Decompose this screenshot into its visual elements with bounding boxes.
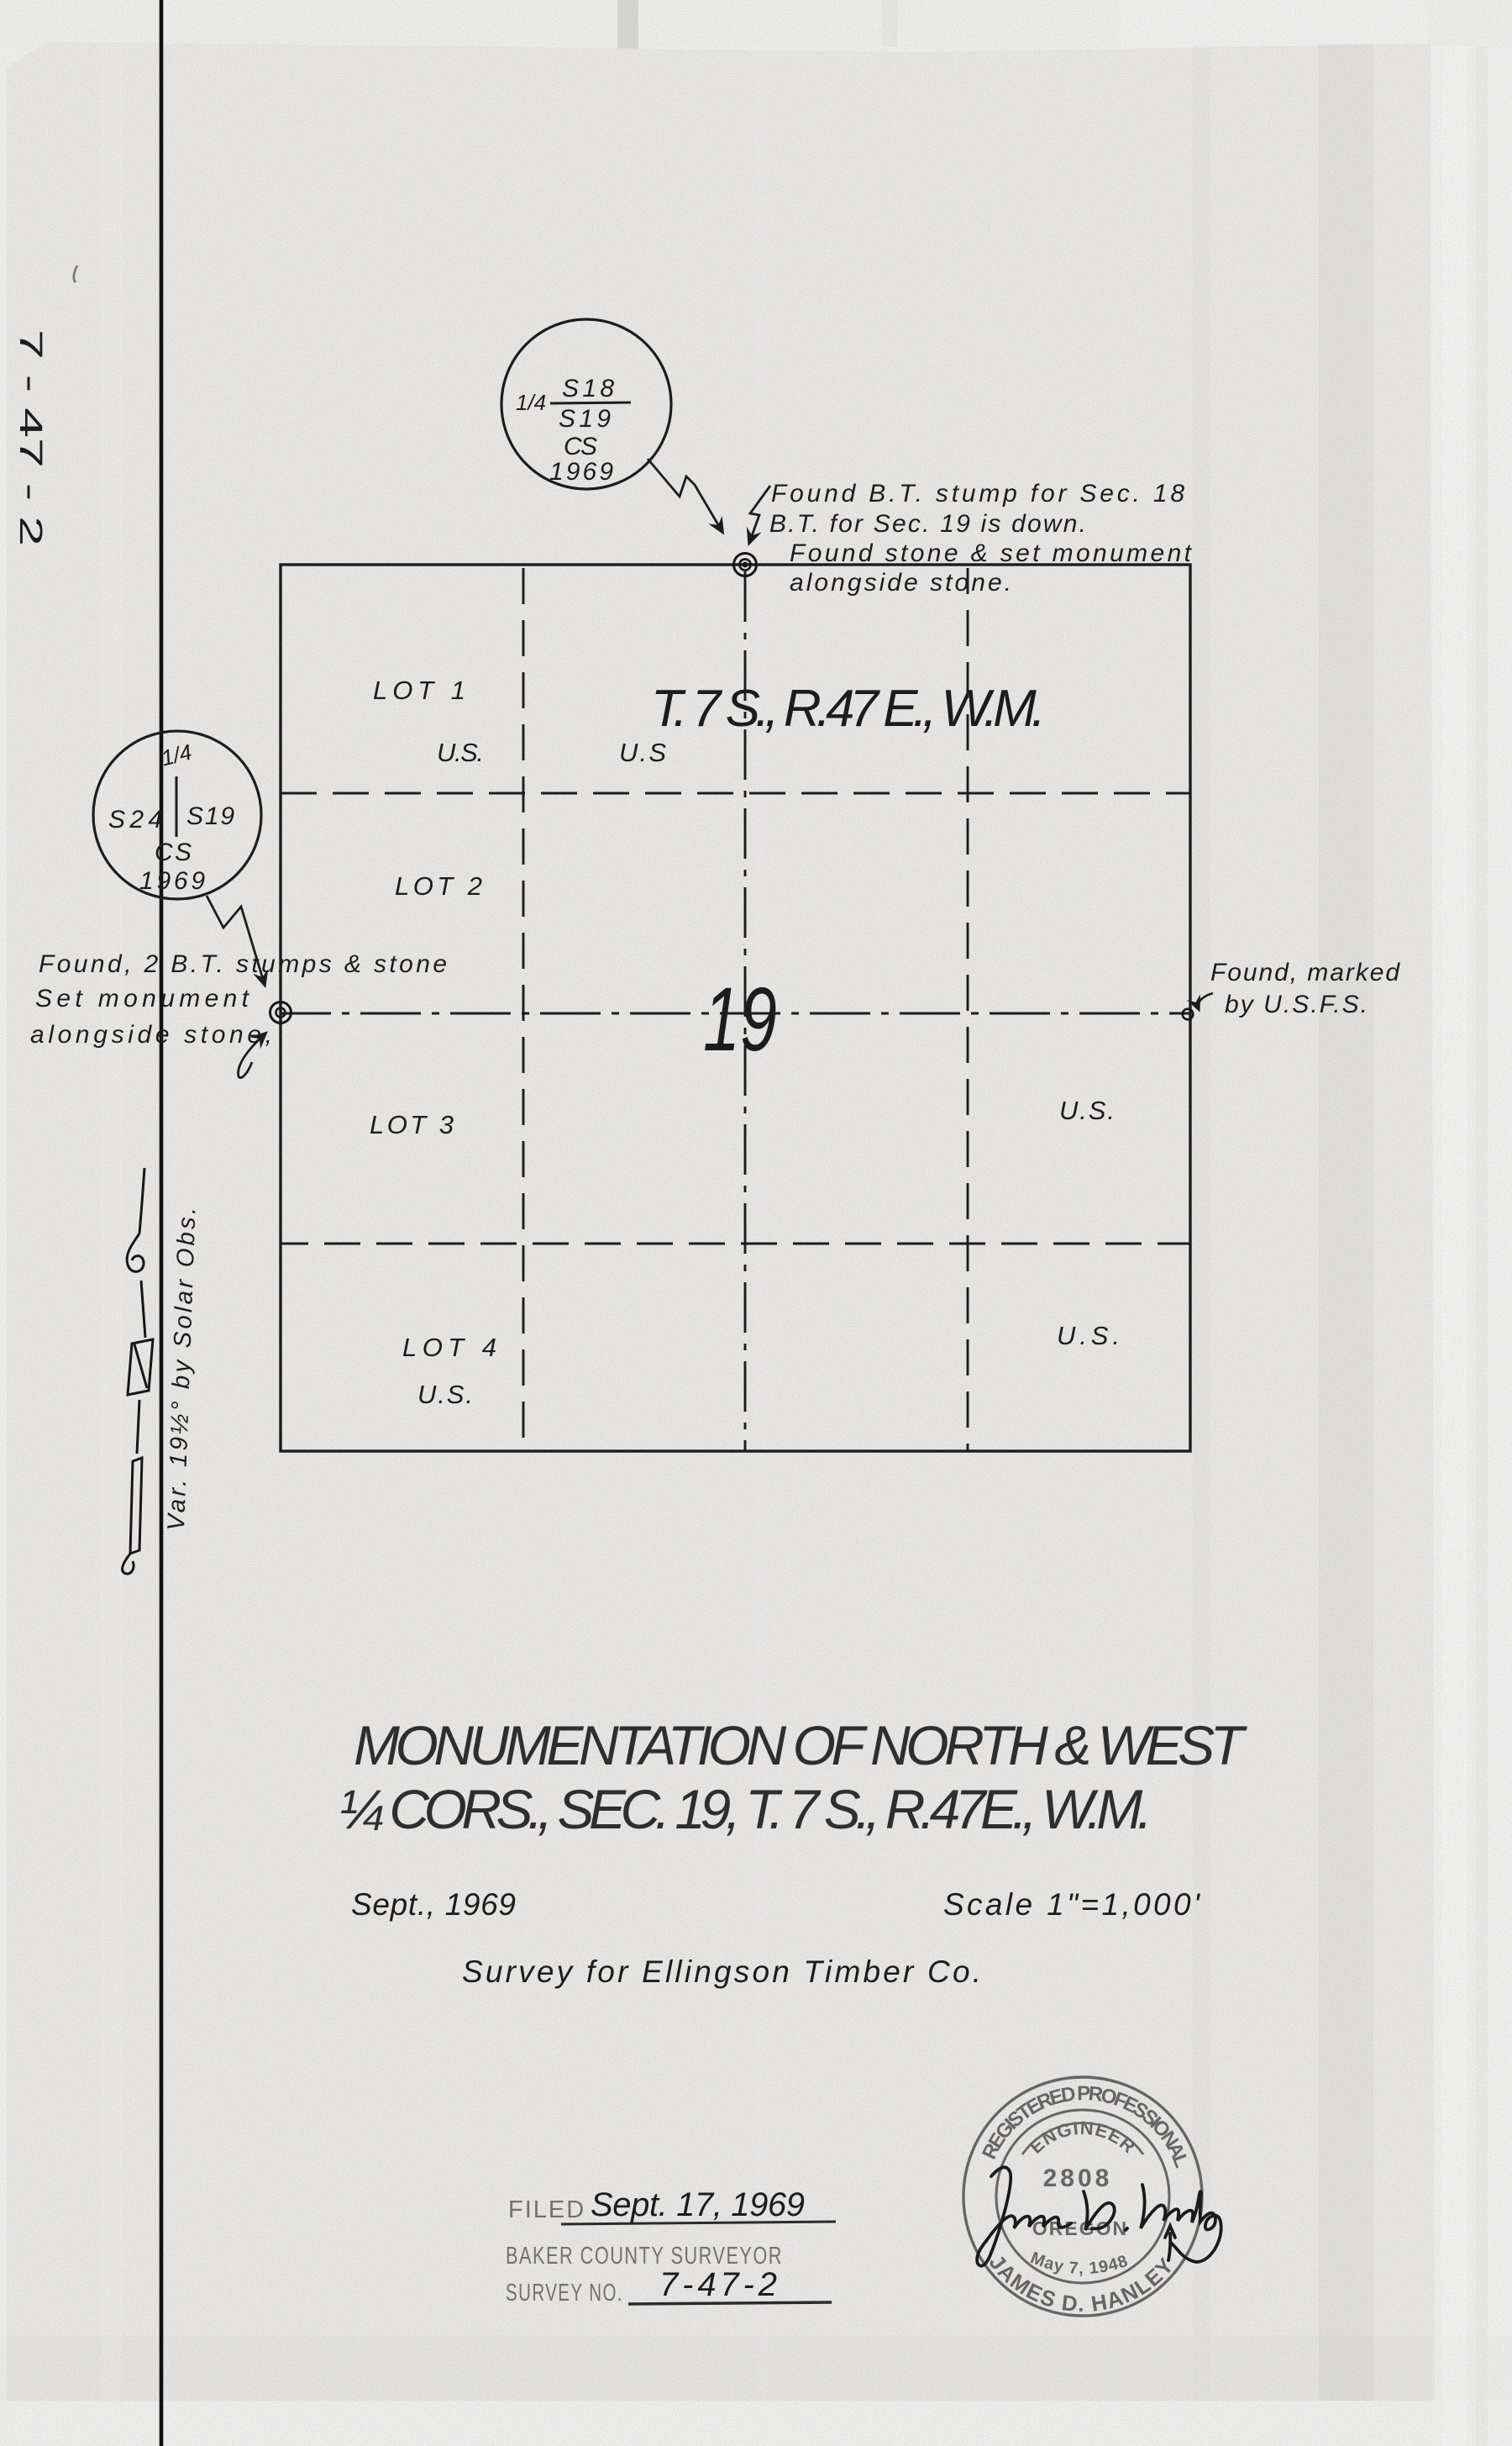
svg-text:alongside stone.: alongside stone. xyxy=(790,569,1011,597)
svg-text:7-47-2: 7-47-2 xyxy=(659,2266,780,2303)
svg-text:7 - 47 - 2: 7 - 47 - 2 xyxy=(13,329,48,546)
svg-text:B.T. for Sec. 19 is down.: B.T. for Sec. 19 is down. xyxy=(769,510,1086,538)
svg-text:S18: S18 xyxy=(562,375,614,402)
svg-text:LOT 3: LOT 3 xyxy=(370,1110,454,1139)
svg-text:¼ CORS., SEC. 19, T. 7 S., R.4: ¼ CORS., SEC. 19, T. 7 S., R.47E., W.M. xyxy=(339,1778,1152,1840)
svg-text:2808: 2808 xyxy=(1043,2165,1113,2192)
svg-text:U.S: U.S xyxy=(619,738,666,767)
svg-text:alongside stone,: alongside stone, xyxy=(30,1021,272,1049)
svg-text:Set monument: Set monument xyxy=(35,985,250,1013)
svg-text:LOT 4: LOT 4 xyxy=(402,1333,496,1362)
svg-text:MONUMENTATION OF NORTH & WEST: MONUMENTATION OF NORTH & WEST xyxy=(354,1714,1248,1776)
svg-text:S24: S24 xyxy=(108,806,162,834)
svg-text:Found, marked: Found, marked xyxy=(1210,959,1400,986)
svg-text:S19: S19 xyxy=(559,405,611,433)
svg-text:S19: S19 xyxy=(186,802,234,830)
svg-text:by U.S.F.S.: by U.S.F.S. xyxy=(1225,991,1368,1018)
svg-text:19: 19 xyxy=(703,968,777,1070)
svg-text:Sept., 1969: Sept., 1969 xyxy=(351,1887,516,1922)
svg-text:T. 7 S., R.47 E., W.M.: T. 7 S., R.47 E., W.M. xyxy=(651,680,1046,738)
svg-text:FILED: FILED xyxy=(508,2196,585,2223)
svg-text:Survey for Ellingson Timber Co: Survey for Ellingson Timber Co. xyxy=(462,1954,981,1989)
svg-text:U.S.: U.S. xyxy=(437,738,484,767)
svg-text:Found stone & set monument: Found stone & set monument xyxy=(790,539,1193,567)
svg-text:LOT 2: LOT 2 xyxy=(395,871,482,901)
svg-text:CS: CS xyxy=(564,433,597,460)
svg-text:Sept. 17, 1969: Sept. 17, 1969 xyxy=(591,2186,805,2223)
svg-text:Found, 2 B.T. stumps & stone: Found, 2 B.T. stumps & stone xyxy=(39,950,447,978)
svg-text:1/4: 1/4 xyxy=(516,390,546,415)
svg-text:Scale 1"=1,000': Scale 1"=1,000' xyxy=(943,1887,1201,1922)
svg-text:LOT 1: LOT 1 xyxy=(373,676,465,705)
svg-text:SURVEY NO.: SURVEY NO. xyxy=(506,2280,623,2307)
